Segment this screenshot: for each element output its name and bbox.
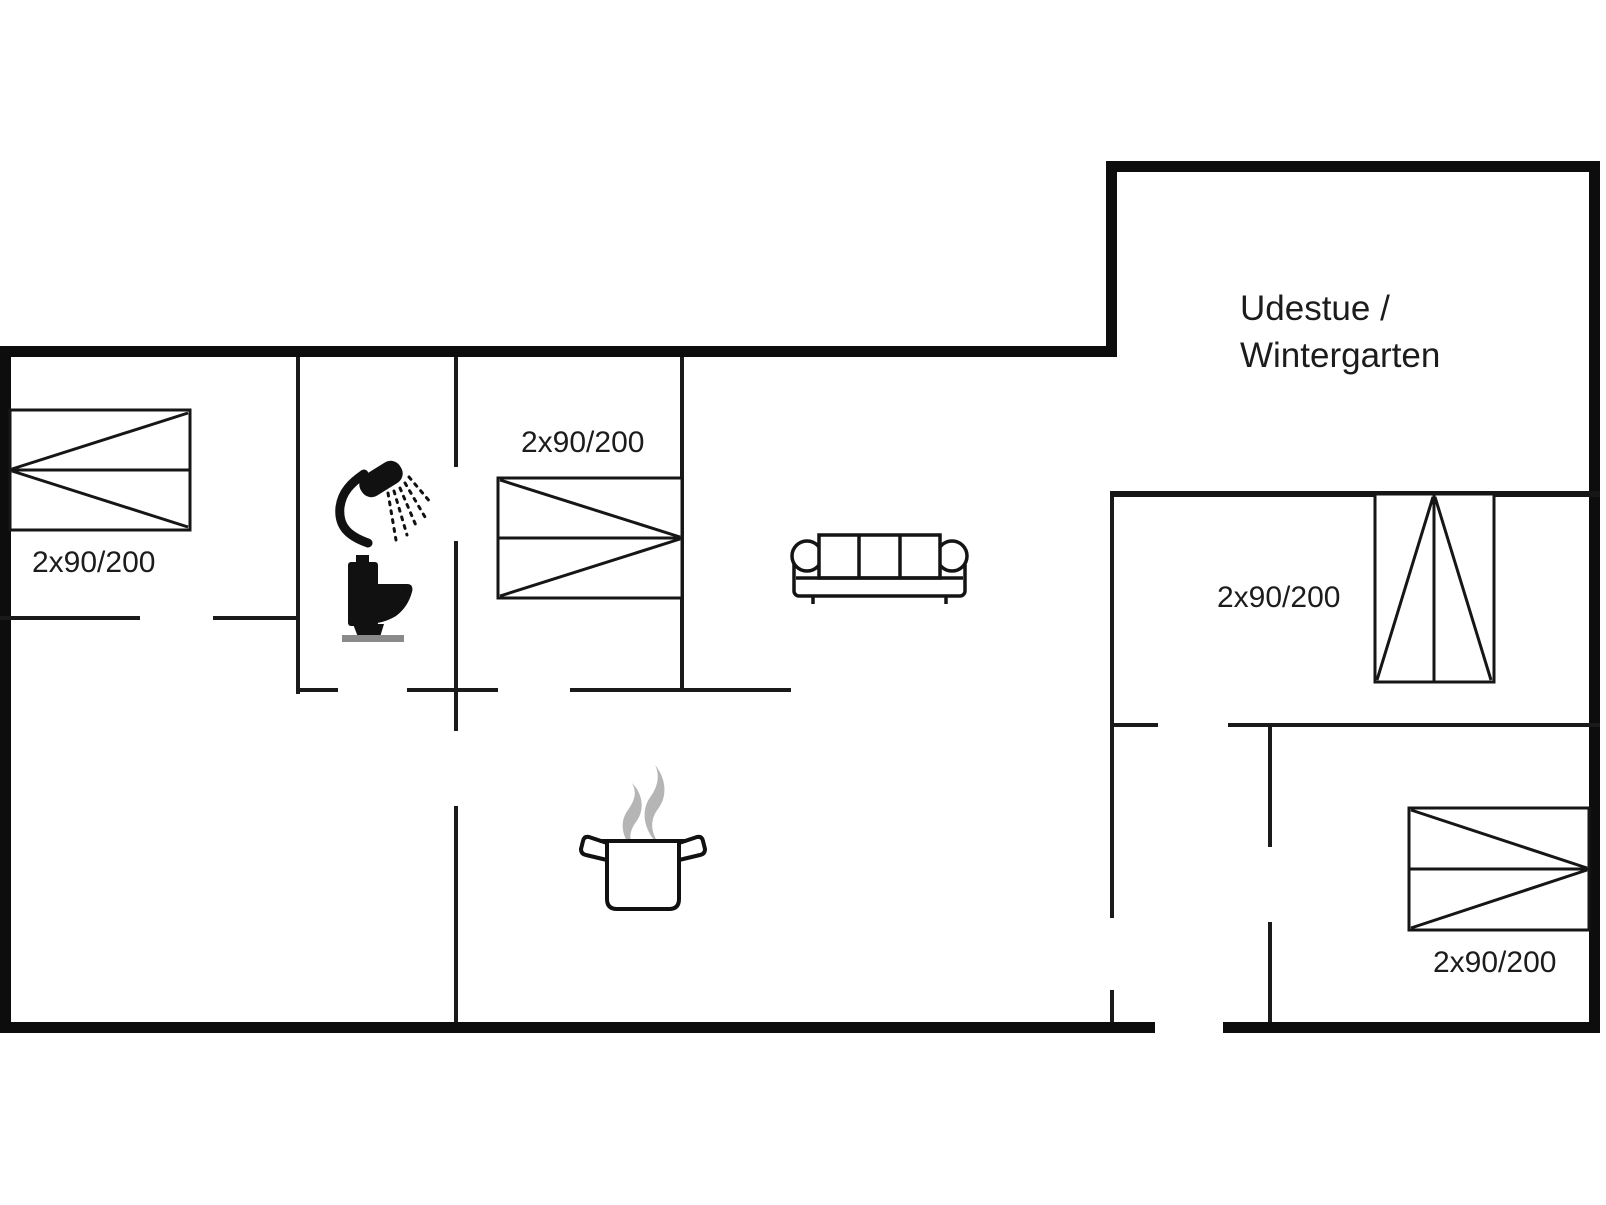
pot-body xyxy=(601,841,685,909)
toilet-base xyxy=(342,635,404,642)
wall-bathroom-bottom-a xyxy=(296,688,338,692)
wall-living-right-lower xyxy=(1110,990,1114,1022)
bed-size-label-left-bedroom: 2x90/200 xyxy=(32,546,155,579)
wall-kitchen-left xyxy=(454,806,458,1022)
shower-spray-line xyxy=(388,493,396,540)
shower-spray-line xyxy=(409,477,431,503)
wall-bedroom3-bottom-main xyxy=(1228,723,1600,727)
bed-right-top-bedroom xyxy=(1375,494,1494,682)
wall-bottom-left-segment xyxy=(0,1022,1155,1033)
wall-sunroom-left xyxy=(1106,161,1117,357)
sunroom-label-line2: Wintergarten xyxy=(1240,336,1440,375)
bed-size-label-middle-bedroom: 2x90/200 xyxy=(521,426,644,459)
sunroom-label: Udestue / Wintergarten xyxy=(1240,289,1440,375)
toilet-bowl xyxy=(376,584,412,623)
wall-right xyxy=(1589,161,1600,1033)
floor-plan-svg: 2x90/200 2x90/200 2x90/200 2x90/200 Udes… xyxy=(0,0,1606,1205)
wall-bedroom4-left-upper xyxy=(1268,725,1272,847)
toilet-tank xyxy=(348,562,378,626)
bed-left-bedroom xyxy=(10,410,190,530)
toilet-icon xyxy=(342,555,412,642)
shower-spray-line xyxy=(400,488,417,528)
wall-living-right-upper xyxy=(1110,497,1114,918)
wall-sunroom-top xyxy=(1106,161,1600,172)
bed-right-bottom-bedroom xyxy=(1409,808,1589,930)
bed-middle-bedroom xyxy=(498,478,682,598)
bed-size-label-right-bottom-bedroom: 2x90/200 xyxy=(1433,946,1556,979)
sofa-back-cushions xyxy=(819,535,940,578)
cooking-pot-icon xyxy=(581,765,705,909)
bed-size-label-right-top-bedroom: 2x90/200 xyxy=(1217,581,1340,614)
shower-spray-line xyxy=(405,483,425,517)
steam-wisp xyxy=(645,765,665,841)
wall-bottom-right-segment xyxy=(1223,1022,1600,1033)
sofa xyxy=(792,535,967,604)
wall-bedroom4-left-lower xyxy=(1268,922,1272,1022)
steam-wisp xyxy=(623,783,642,848)
wall-bedroom3-bottom-stub xyxy=(1110,723,1158,727)
wall-top-main xyxy=(0,346,1117,357)
wall-left-bedroom-bottom-a xyxy=(0,616,140,620)
shower-head xyxy=(355,457,407,502)
sunroom-label-line1: Udestue / xyxy=(1240,289,1390,328)
shower-icon xyxy=(340,457,431,543)
wall-bathroom-right-lower xyxy=(454,541,458,731)
wall-bathroom-left xyxy=(296,357,300,694)
wall-bathroom-right-upper xyxy=(454,357,458,467)
wall-bathroom-bottom-b xyxy=(407,688,498,692)
wall-sunroom-bottom xyxy=(1110,491,1600,497)
wall-middle-bedroom-bottom xyxy=(570,688,791,692)
wall-left-bedroom-bottom-b xyxy=(213,616,300,620)
floor-plan-page: 2x90/200 2x90/200 2x90/200 2x90/200 Udes… xyxy=(0,0,1606,1205)
interior-walls xyxy=(0,357,1600,1022)
